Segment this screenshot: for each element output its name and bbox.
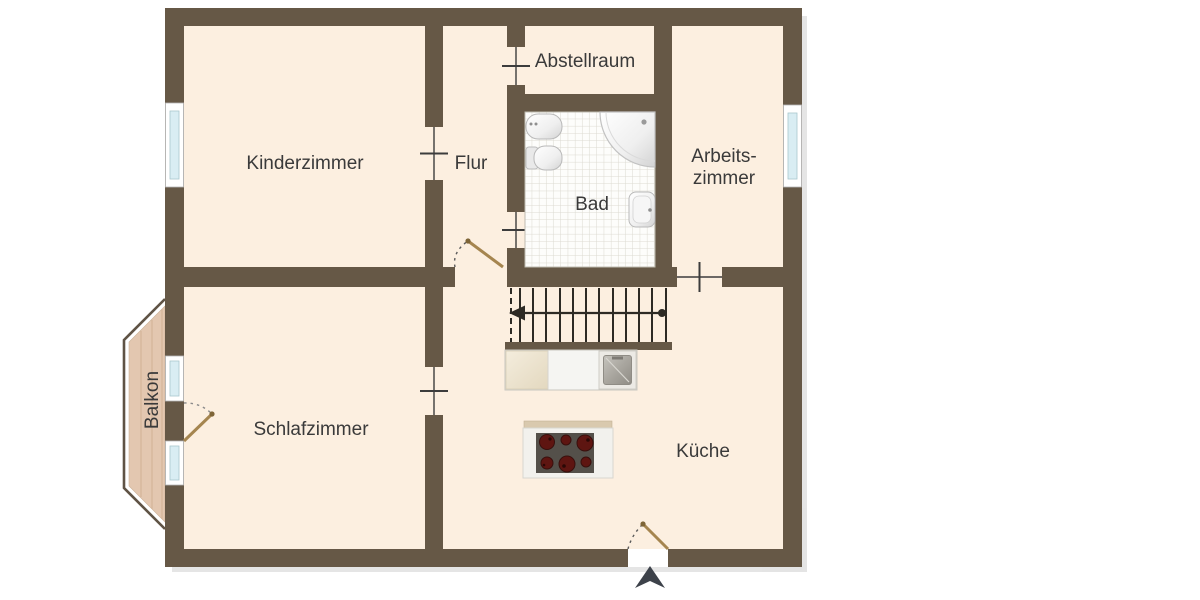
wall-outer-bottom	[165, 549, 802, 567]
wall-kinderzimmer-flur-lower	[425, 180, 443, 267]
window-schlafzimmer-upper	[166, 356, 184, 401]
stove-six-burner-icon	[523, 421, 613, 478]
toilet-icon	[526, 146, 562, 170]
label-balkon: Balkon	[142, 371, 163, 429]
label-schlafzimmer: Schlafzimmer	[253, 419, 369, 440]
wall-outer-top	[165, 8, 802, 26]
kitchen-counter-icon	[505, 350, 637, 390]
stair-bottom-rail	[505, 342, 672, 350]
window-kinderzimmer	[166, 103, 184, 187]
washbasin-icon	[526, 114, 562, 139]
label-kueche: Küche	[676, 441, 730, 462]
wall-mid-left	[184, 267, 455, 287]
window-arbeitszimmer	[784, 105, 802, 187]
label-flur: Flur	[455, 153, 488, 174]
shower-drain	[641, 119, 646, 124]
window-schlafzimmer-lower	[166, 441, 184, 485]
door-knob	[465, 238, 470, 243]
label-abstellraum: Abstellraum	[535, 51, 635, 72]
label-arbeitszimmer-line2: zimmer	[693, 168, 756, 189]
wall-outer-right	[783, 8, 802, 567]
wall-schlafzimmer-kueche-lower	[425, 415, 443, 549]
wall-schlafzimmer-kueche-upper	[425, 287, 443, 367]
floorplan-svg: Kinderzimmer Flur Abstellraum Bad Arbeit…	[0, 0, 1200, 600]
label-bad: Bad	[575, 194, 609, 215]
small-washbasin-icon	[629, 192, 655, 227]
door-knob	[209, 411, 214, 416]
label-kinderzimmer: Kinderzimmer	[246, 153, 364, 174]
kitchen-sink-icon	[599, 351, 636, 389]
label-arbeitszimmer-line1: Arbeits-	[691, 146, 756, 167]
wall-abstellraum-bad	[507, 94, 672, 112]
floorplan-canvas: Kinderzimmer Flur Abstellraum Bad Arbeit…	[0, 0, 1200, 600]
bathroom	[525, 112, 655, 267]
wall-mid-center	[507, 267, 677, 287]
wall-bad-arbeitszimmer	[654, 26, 672, 287]
entrance-opening	[628, 549, 668, 567]
door-knob	[640, 521, 645, 526]
wall-mid-right	[722, 267, 783, 287]
wall-flur-abstellraum-top	[507, 26, 525, 47]
wall-kinderzimmer-flur-upper	[425, 26, 443, 127]
building-interior-floor	[184, 26, 783, 549]
sink-faucet	[612, 357, 623, 360]
